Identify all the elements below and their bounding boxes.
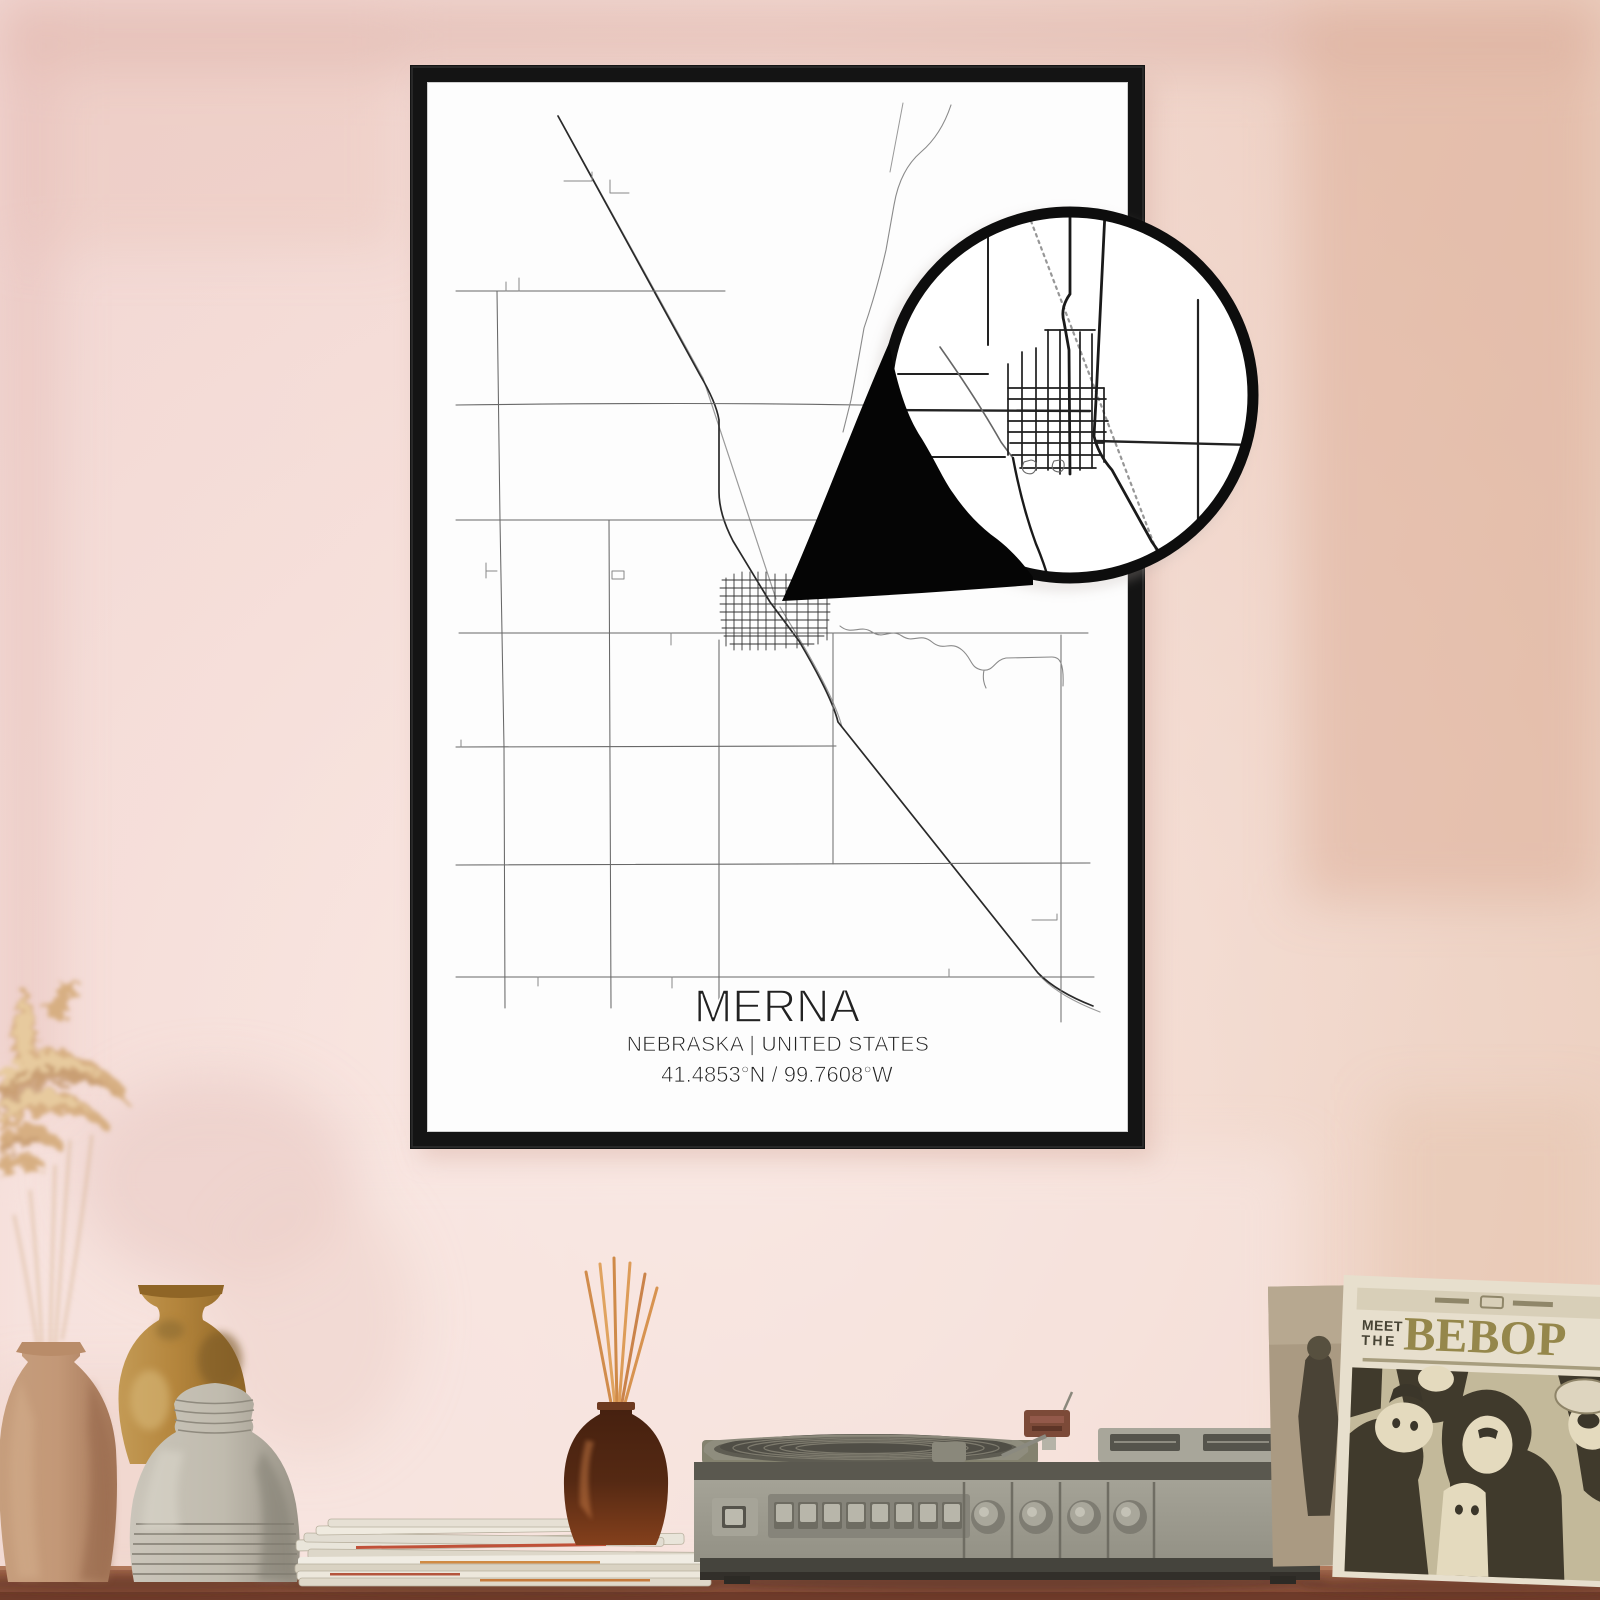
svg-text:BEBOP: BEBOP <box>1403 1307 1568 1366</box>
svg-text:NEBRASKA | UNITED STATES: NEBRASKA | UNITED STATES <box>627 1033 930 1056</box>
svg-text:MERNA: MERNA <box>694 980 860 1032</box>
svg-text:41.4853°N / 99.7608°W: 41.4853°N / 99.7608°W <box>661 1062 893 1087</box>
svg-text:THE: THE <box>1361 1332 1397 1349</box>
